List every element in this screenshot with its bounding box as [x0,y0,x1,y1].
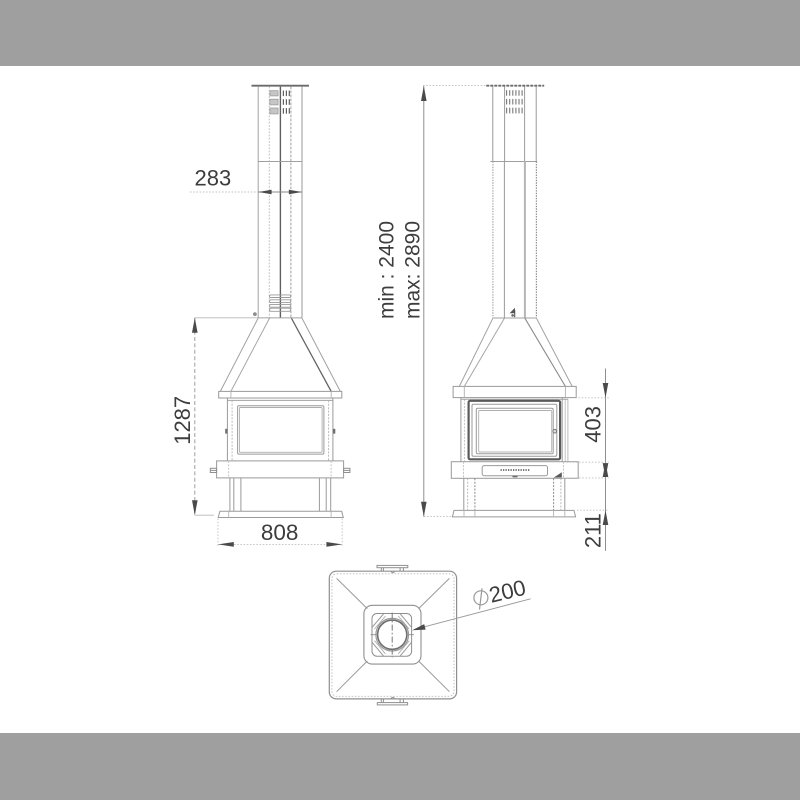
svg-text:403: 403 [580,406,605,443]
svg-text:min : 2400: min : 2400 [375,221,398,319]
svg-text:283: 283 [195,166,232,191]
svg-text:808: 808 [261,520,299,545]
svg-text:1287: 1287 [170,396,195,445]
svg-text:max: 2890: max: 2890 [401,221,424,319]
svg-text:211: 211 [581,513,606,548]
